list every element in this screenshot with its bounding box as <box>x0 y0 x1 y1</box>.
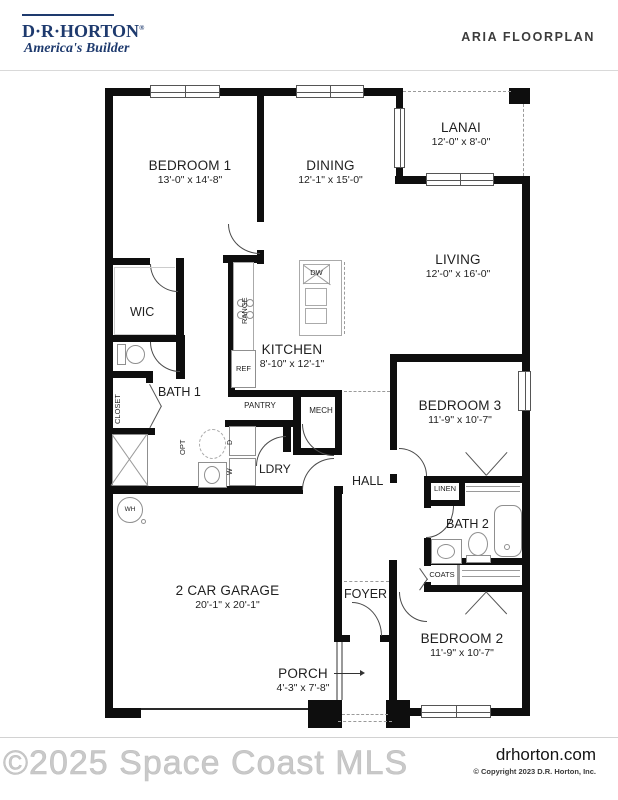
label-opt: OPT <box>178 433 188 455</box>
window-line <box>525 372 526 410</box>
window <box>426 173 494 186</box>
window <box>150 85 220 98</box>
room-dims: 12'-0" x 16'-0" <box>405 268 511 280</box>
floor-drain <box>141 519 146 524</box>
room-label-wic: WIC <box>130 305 154 319</box>
window-divider <box>460 174 461 185</box>
wall-segment <box>334 486 342 642</box>
room-dims: 20'-1" x 20'-1" <box>155 599 300 611</box>
label-mech: MECH <box>303 406 339 415</box>
sliding-door <box>394 108 405 168</box>
label-coats: COATS <box>426 570 458 579</box>
copyright-text: © Copyright 2023 D.R. Horton, Inc. <box>473 767 596 776</box>
window-divider <box>456 706 457 717</box>
room-name: KITCHEN <box>247 342 337 357</box>
logo-title-text: D·R·HORTON <box>22 21 139 41</box>
sliding-door-line <box>400 109 401 167</box>
floorplan-page: D·R·HORTON® America's Builder ARIA FLOOR… <box>0 0 618 800</box>
label-pantry: PANTRY <box>238 401 282 410</box>
bifold-door-line <box>149 405 162 428</box>
label-closet: CLOSET <box>113 380 123 424</box>
room-label-bedroom1: BEDROOM 1 13'-0" x 14'-8" <box>120 158 260 186</box>
optional-tub <box>199 429 226 459</box>
wall-segment <box>105 335 185 342</box>
closet-door-line <box>485 591 507 615</box>
room-label-lanai: LANAI 12'-0" x 8'-0" <box>408 120 514 148</box>
wall-segment <box>105 708 141 718</box>
wall-segment <box>105 371 150 378</box>
label-dryer: D <box>227 435 237 445</box>
room-label-living: LIVING 12'-0" x 16'-0" <box>405 252 511 280</box>
room-name: 2 CAR GARAGE <box>155 583 300 598</box>
header-divider <box>0 70 618 71</box>
wall-segment <box>228 390 342 397</box>
label-range: RANGE <box>240 288 250 324</box>
registered-mark: ® <box>139 24 144 32</box>
window <box>296 85 364 98</box>
label-ref: REF <box>233 364 254 373</box>
room-label-ldry: LDRY <box>259 462 291 476</box>
mls-watermark: ©2025 Space Coast MLS <box>3 744 408 783</box>
porch-step <box>338 721 392 722</box>
logo-title: D·R·HORTON® <box>22 18 144 41</box>
toilet-tank <box>117 344 126 365</box>
room-label-bath2: BATH 2 <box>446 517 489 531</box>
door-arc <box>150 342 180 372</box>
wall-segment <box>146 371 153 383</box>
room-label-garage: 2 CAR GARAGE 20'-1" x 20'-1" <box>155 583 300 611</box>
website-link[interactable]: drhorton.com <box>496 745 596 765</box>
room-name: BEDROOM 1 <box>120 158 260 173</box>
closet-rod <box>462 570 520 571</box>
room-name: DINING <box>278 158 383 173</box>
wall-segment <box>424 476 522 483</box>
logo-tagline: America's Builder <box>22 41 144 57</box>
door-arc <box>352 602 382 636</box>
room-label-kitchen: KITCHEN 8'-10" x 12'-1" <box>247 342 337 370</box>
wall-segment <box>380 635 397 642</box>
garage-door-line <box>141 708 308 710</box>
wic-shelving <box>114 267 175 335</box>
door-arc <box>302 458 334 490</box>
door-arc <box>399 448 427 476</box>
wall-segment <box>390 354 530 362</box>
wall-segment <box>390 362 397 450</box>
closet-door-line <box>465 591 487 615</box>
room-label-bath1: BATH 1 <box>158 385 201 399</box>
wall-segment <box>105 258 150 265</box>
closet-door-line <box>465 452 487 476</box>
room-dims: 12'-1" x 15'-0" <box>278 174 383 186</box>
logo-rule <box>22 14 114 16</box>
door-arc <box>228 224 260 254</box>
tub-drain <box>504 544 510 550</box>
toilet-bowl <box>468 532 488 556</box>
closet-rod <box>466 486 520 487</box>
room-label-porch: PORCH 4'-3" x 7'-8" <box>268 666 338 694</box>
island-sink <box>305 308 327 324</box>
closet-rod <box>462 576 520 577</box>
label-dw: DW <box>303 268 330 277</box>
wall-segment <box>509 88 530 104</box>
room-name: BEDROOM 2 <box>409 631 515 646</box>
porch-arrow-head <box>360 670 365 676</box>
window <box>518 371 531 411</box>
room-name: LIVING <box>405 252 511 267</box>
lanai-screen-top <box>403 91 511 92</box>
wall-segment <box>335 635 350 642</box>
drhorton-logo: D·R·HORTON® America's Builder <box>22 14 144 57</box>
bath2-sink-bowl <box>437 544 455 559</box>
footer-divider <box>0 737 618 738</box>
room-label-foyer: FOYER <box>344 587 387 601</box>
room-label-bedroom2: BEDROOM 2 11'-9" x 10'-7" <box>409 631 515 659</box>
porch-arrow-line <box>334 673 360 674</box>
room-name: LANAI <box>408 120 514 135</box>
wall-segment <box>390 474 397 483</box>
room-name: PORCH <box>268 666 338 681</box>
closet-door-line <box>486 452 508 476</box>
window-divider <box>330 86 331 97</box>
page-title: ARIA FLOORPLAN <box>461 30 595 44</box>
room-name: BEDROOM 3 <box>407 398 513 413</box>
label-wh: WH <box>117 506 143 513</box>
wall-segment <box>335 397 342 450</box>
island-sink <box>305 288 327 306</box>
room-dims: 13'-0" x 14'-8" <box>120 174 260 186</box>
window <box>421 705 491 718</box>
room-label-hall: HALL <box>352 474 383 488</box>
window-divider <box>185 86 186 97</box>
toilet-bowl <box>126 345 145 364</box>
hall-threshold <box>344 391 390 392</box>
island-overhang <box>344 262 345 334</box>
room-dims: 11'-9" x 10'-7" <box>409 647 515 659</box>
label-linen: LINEN <box>430 484 460 493</box>
room-label-bedroom3: BEDROOM 3 11'-9" x 10'-7" <box>407 398 513 426</box>
porch-step <box>342 714 388 715</box>
room-dims: 8'-10" x 12'-1" <box>247 358 337 370</box>
wall-segment <box>424 585 522 592</box>
room-dims: 4'-3" x 7'-8" <box>268 682 338 694</box>
closet-rod <box>466 491 520 492</box>
toilet-tank <box>466 555 491 563</box>
label-washer: W <box>227 465 237 475</box>
wall-segment <box>522 176 530 716</box>
door-arc <box>399 592 427 622</box>
room-dims: 12'-0" x 8'-0" <box>408 136 514 148</box>
room-label-dining: DINING 12'-1" x 15'-0" <box>278 158 383 186</box>
bath1-sink-bowl <box>204 466 220 484</box>
wall-segment <box>293 397 301 450</box>
wall-segment <box>308 700 342 728</box>
foyer-threshold <box>344 581 389 582</box>
room-dims: 11'-9" x 10'-7" <box>407 414 513 426</box>
lanai-screen-right <box>523 104 524 176</box>
porch-rail <box>341 642 343 700</box>
wall-segment <box>105 88 113 718</box>
